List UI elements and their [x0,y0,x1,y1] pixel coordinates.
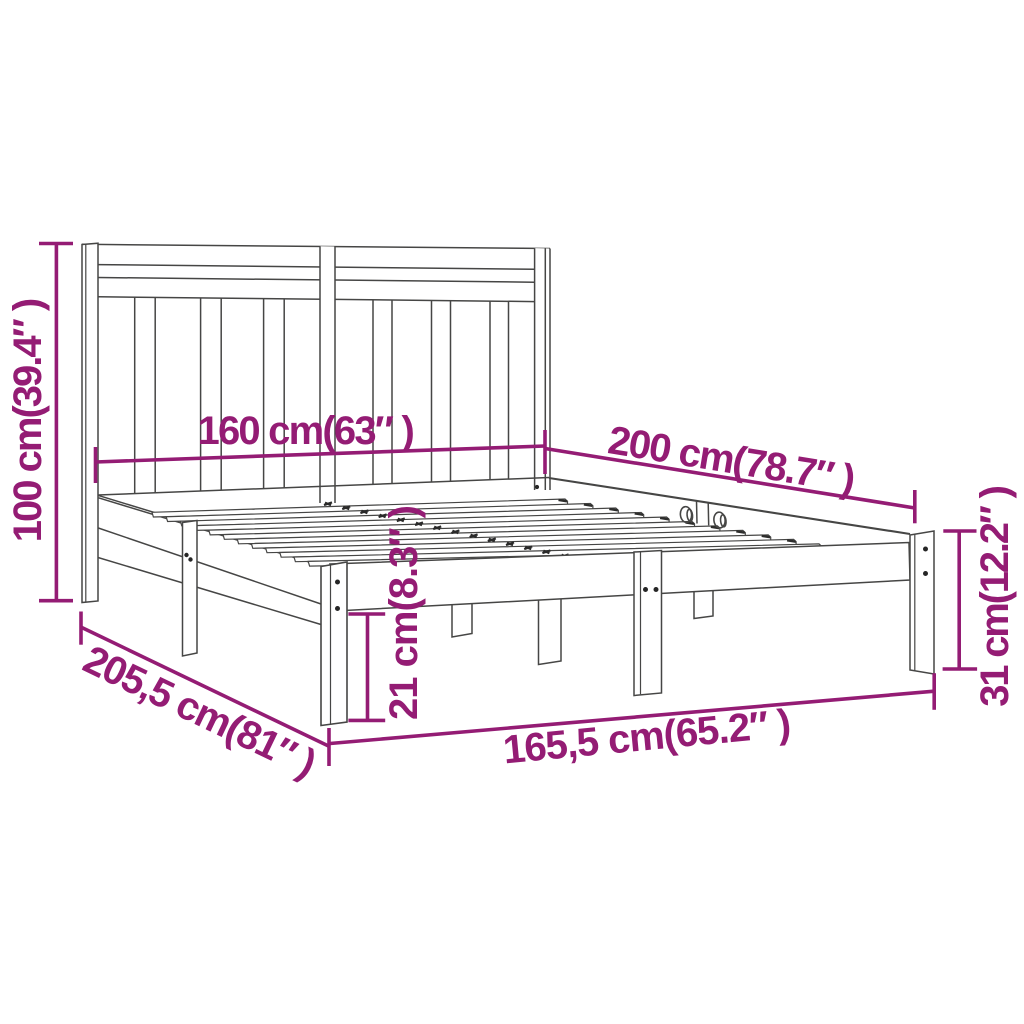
svg-text:21 cm(8.3″ ): 21 cm(8.3″ ) [382,506,426,720]
svg-text:31 cm(12.2″ ): 31 cm(12.2″ ) [973,486,1017,706]
svg-text:160 cm(63″ ): 160 cm(63″ ) [198,409,414,453]
svg-text:100 cm(39.4″ ): 100 cm(39.4″ ) [6,299,50,542]
